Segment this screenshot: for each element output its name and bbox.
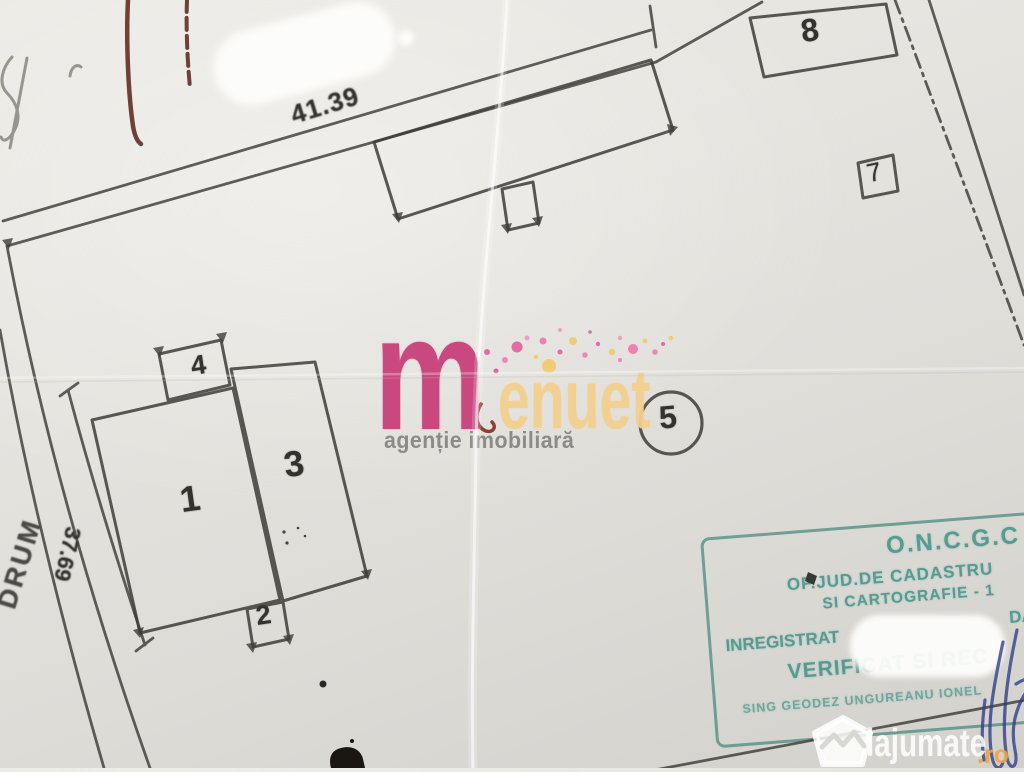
watermark-tld: .ro	[977, 741, 1009, 770]
east-road-edge-dashed	[895, 0, 1024, 345]
west-boundary-line	[7, 246, 150, 768]
scanned-cadastral-plan: { "plan": { "dim_top": "41.39", "dim_lef…	[0, 0, 1024, 768]
logo-tagline: agenție imobiliară	[384, 427, 574, 454]
dimension-end-tick	[650, 6, 656, 47]
pencil-mark	[1, 57, 81, 148]
warehouse-outline	[374, 60, 673, 219]
watermark-brand: lajumate	[866, 722, 986, 766]
east-road-edge	[929, 0, 1024, 295]
glare-speck	[398, 30, 414, 46]
building-8-outline	[750, 4, 897, 77]
parcel-label-5: 5	[657, 398, 678, 436]
warehouse-notch	[502, 182, 539, 230]
erased-patch-stamp	[850, 615, 1005, 677]
